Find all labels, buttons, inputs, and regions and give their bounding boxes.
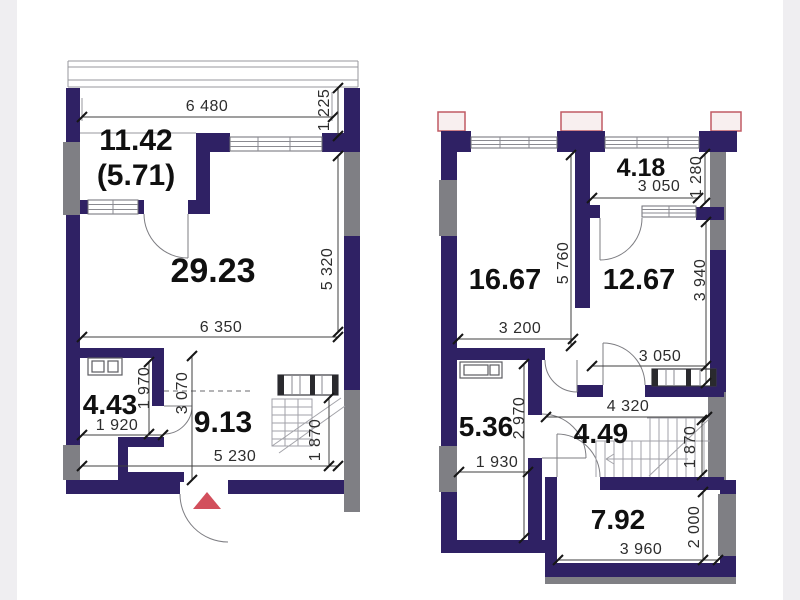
- svg-text:3 200: 3 200: [499, 320, 542, 337]
- room-area-bedroom-left: 16.67: [469, 264, 542, 296]
- room-area-balcony-f1: 11.42: [99, 124, 172, 157]
- room-area-hall-f2: 4.49: [574, 418, 629, 449]
- svg-text:4 320: 4 320: [607, 398, 650, 415]
- svg-text:6 480: 6 480: [186, 98, 229, 115]
- svg-text:5 320: 5 320: [319, 248, 336, 291]
- svg-text:1 225: 1 225: [316, 89, 333, 132]
- dim-bathroom-width-f2: 1 930: [454, 454, 533, 477]
- stair-railing-floor1: [278, 375, 338, 395]
- balcony-railing: [68, 61, 358, 87]
- svg-text:3 050: 3 050: [638, 178, 681, 195]
- svg-text:1 930: 1 930: [476, 454, 519, 471]
- svg-text:3 070: 3 070: [174, 372, 191, 415]
- dim-bedroom-left-width: 3 200: [453, 320, 578, 344]
- room-area-bedroom-right: 12.67: [603, 264, 676, 296]
- svg-text:1 280: 1 280: [688, 156, 705, 199]
- room-area-living: 29.23: [170, 252, 255, 290]
- exterior-unit-left: [438, 112, 465, 131]
- dim-bathroom-height-f1: 1 970: [136, 357, 154, 439]
- svg-text:1 920: 1 920: [96, 417, 139, 434]
- floorplan-drawing: 11.42 (5.71) 29.23 4.43 9.13 6 480 1 225: [0, 0, 800, 600]
- svg-text:3 960: 3 960: [620, 541, 663, 558]
- dim-bedroom-right-height: 3 940: [692, 217, 711, 388]
- svg-text:3 940: 3 940: [692, 259, 709, 302]
- exterior-unit-middle: [561, 112, 602, 131]
- plan-floor-2: 4.18 16.67 12.67 5.36 4.49 7.92 3 050 1 …: [438, 112, 741, 584]
- floorplan-page: 11.42 (5.71) 29.23 4.43 9.13 6 480 1 225: [0, 0, 800, 600]
- room-area-room-bottom: 7.92: [591, 504, 646, 535]
- dim-top-width: 6 480: [77, 92, 338, 122]
- svg-text:1 970: 1 970: [136, 367, 153, 410]
- dim-hall-width-f1: 5 230: [77, 448, 343, 471]
- room-area-balcony-f1-reduced: (5.71): [97, 159, 175, 192]
- exterior-unit-right: [711, 112, 741, 131]
- sink-fixture-floor2: [460, 362, 502, 378]
- svg-text:2 970: 2 970: [511, 397, 528, 440]
- svg-text:1 870: 1 870: [682, 426, 699, 469]
- svg-text:5 760: 5 760: [555, 242, 572, 285]
- room-area-bathroom-f1: 4.43: [83, 389, 138, 420]
- svg-text:3 050: 3 050: [639, 348, 682, 365]
- dim-balcony-width-f2: 3 050: [587, 178, 703, 203]
- window-balcony-wall: [88, 200, 138, 214]
- dim-stairs-f1: 1 870: [307, 393, 334, 471]
- dim-room-bottom-height: 2 000: [686, 487, 708, 565]
- door-bedroom-left: [545, 360, 577, 392]
- dim-living-width: 6 350: [77, 319, 343, 342]
- dim-balcony-depth-f2: 1 280: [688, 149, 710, 208]
- room-area-hall-f1: 9.13: [194, 406, 252, 439]
- dim-bathroom-width-f1: 1 920: [77, 417, 168, 440]
- room-area-bathroom-f2: 5.36: [459, 411, 514, 442]
- svg-text:6 350: 6 350: [200, 319, 243, 336]
- dim-bedroom-left-height: 5 760: [555, 150, 576, 351]
- balcony-door-f2: [600, 218, 642, 260]
- window-living-top: [230, 137, 322, 151]
- dim-bedroom-right-width: 3 050: [587, 348, 711, 371]
- window-balcony-f2: [642, 206, 696, 217]
- sink-fixture-floor1: [88, 358, 122, 375]
- dim-bathroom-height-f2: 2 970: [511, 359, 529, 543]
- svg-text:1 870: 1 870: [307, 419, 324, 462]
- dim-living-height: 5 320: [319, 151, 343, 337]
- entrance-triangle-marker: [193, 492, 221, 509]
- svg-text:2 000: 2 000: [686, 506, 703, 549]
- window-top-right-f2: [605, 137, 699, 148]
- dim-balcony-depth-f1: 1 225: [316, 83, 343, 141]
- window-top-left-f2: [471, 137, 557, 148]
- plan-floor-1: 11.42 (5.71) 29.23 4.43 9.13 6 480 1 225: [63, 61, 360, 542]
- svg-text:5 230: 5 230: [214, 448, 257, 465]
